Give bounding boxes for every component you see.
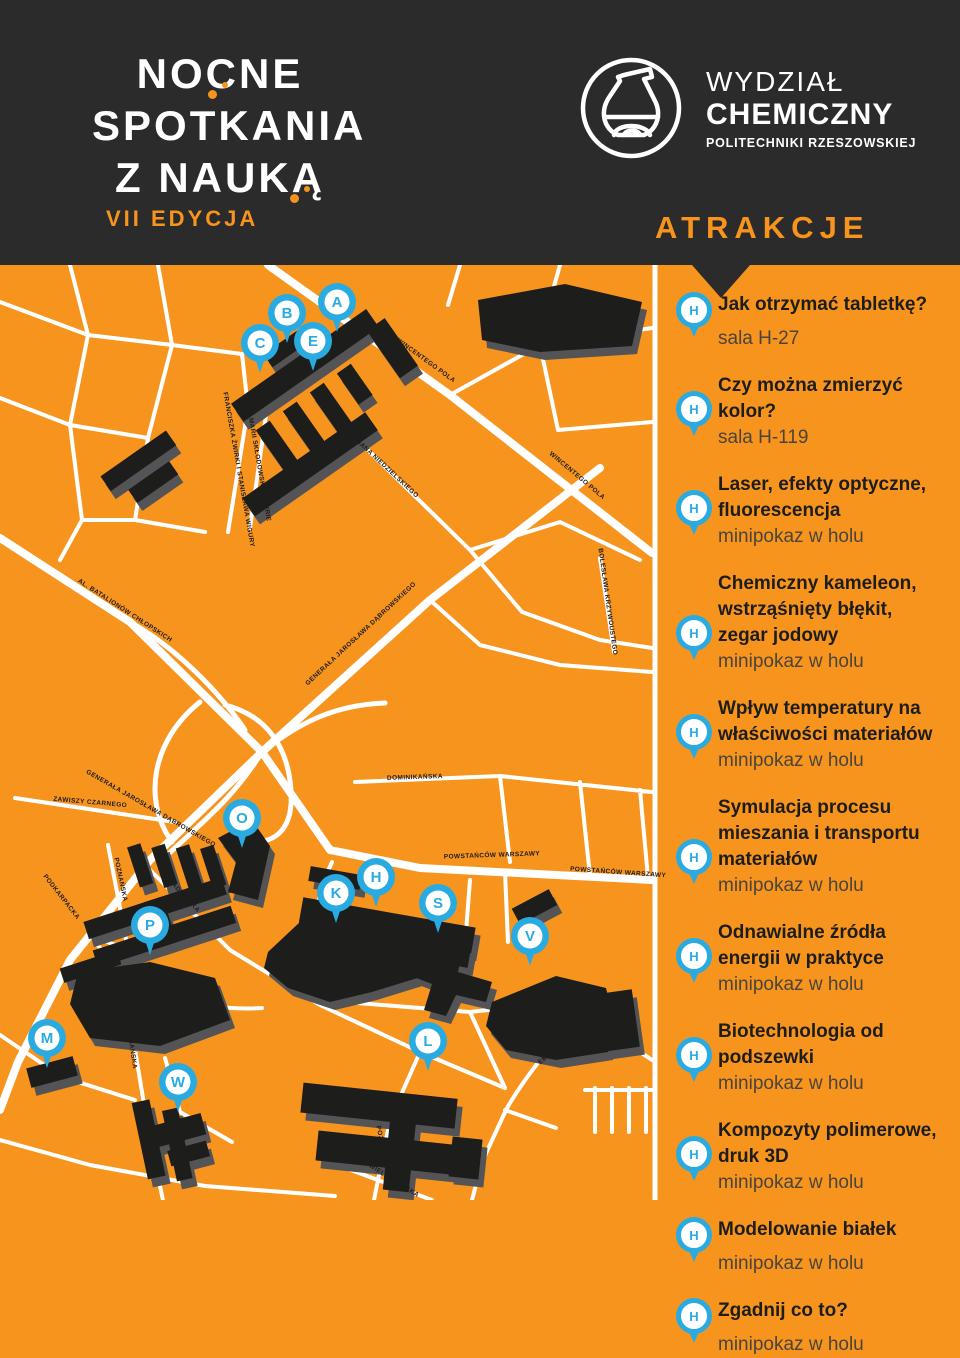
pin-cell: H bbox=[668, 938, 714, 974]
street-label: GENERAŁA JAROSŁAWA DĄBROWSKIEGO bbox=[304, 581, 417, 687]
event-logo: NOCNE SPOTKANIA Z NAUKĄ VII EDYCJA bbox=[92, 48, 348, 232]
attraction-location: minipokaz w holu bbox=[718, 972, 946, 998]
bubble-accent-icon bbox=[222, 82, 228, 88]
location-pin-icon: H bbox=[676, 1136, 712, 1172]
pin-cell: H bbox=[668, 391, 714, 427]
pointer-arrow-icon bbox=[692, 265, 750, 298]
attraction-title: Zgadnij co to? bbox=[718, 1298, 946, 1332]
attraction-title: Chemiczny kameleon, wstrząśnięty błękit,… bbox=[718, 571, 946, 649]
location-pin-icon: H bbox=[676, 490, 712, 526]
attraction-title: Wpływ temperatury na właściwości materia… bbox=[718, 696, 946, 748]
street-label: POWSTAŃCÓW WARSZAWY bbox=[444, 848, 541, 860]
attraction-location: minipokaz w holu bbox=[718, 1251, 946, 1277]
attraction-item: H Zgadnij co to? minipokaz w holu bbox=[668, 1298, 946, 1358]
attraction-location: sala H-27 bbox=[718, 326, 946, 352]
location-pin-icon: H bbox=[676, 714, 712, 750]
bubble-accent-icon bbox=[208, 90, 217, 99]
pin-letter: H bbox=[689, 1228, 698, 1243]
pin-cell: H bbox=[668, 839, 714, 875]
street-label: PODKARPACKA bbox=[41, 873, 81, 921]
pin-cell: H bbox=[668, 490, 714, 526]
map-pin-letter: W bbox=[171, 1074, 186, 1091]
street-label: AL. BATALIONÓW CHŁOPSKICH bbox=[76, 576, 174, 644]
event-edition: VII EDYCJA bbox=[106, 206, 348, 232]
attraction-location: minipokaz w holu bbox=[718, 873, 946, 899]
map-pin-letter: V bbox=[525, 928, 535, 945]
attraction-item: H Jak otrzymać tabletkę? sala H-27 bbox=[668, 292, 946, 352]
attraction-item: H Chemiczny kameleon, wstrząśnięty błęki… bbox=[668, 571, 946, 675]
faculty-logo: WYDZIAŁ CHEMICZNY POLITECHNIKI RZESZOWSK… bbox=[578, 55, 916, 161]
event-title-line3: Z NAUKĄ bbox=[92, 152, 348, 204]
attraction-item: H Czy można zmierzyć kolor? sala H-119 bbox=[668, 373, 946, 451]
pin-cell: H bbox=[668, 1217, 714, 1253]
flask-icon bbox=[578, 55, 684, 161]
attraction-title: Kompozyty polimerowe, druk 3D bbox=[718, 1118, 946, 1170]
location-pin-icon: H bbox=[676, 1037, 712, 1073]
location-pin-icon: H bbox=[676, 1217, 712, 1253]
map-pin-letter: P bbox=[145, 917, 155, 934]
attraction-title: Czy można zmierzyć kolor? bbox=[718, 373, 946, 425]
map-pin-letter: S bbox=[433, 895, 443, 912]
pin-letter: H bbox=[689, 626, 698, 641]
map-pin-W[interactable]: W bbox=[159, 1063, 197, 1112]
location-pin-icon: H bbox=[676, 1298, 712, 1334]
map-pin-letter: K bbox=[331, 885, 342, 902]
map-pin-letter: H bbox=[371, 869, 382, 886]
pin-letter: H bbox=[689, 1048, 698, 1063]
attraction-title: Jak otrzymać tabletkę? bbox=[718, 292, 946, 326]
event-title-line1: NOCNE bbox=[92, 48, 348, 100]
attraction-item: H Odnawialne źródła energii w praktyce m… bbox=[668, 920, 946, 998]
bubble-accent-icon bbox=[290, 194, 299, 203]
location-pin-icon: H bbox=[676, 839, 712, 875]
pin-cell: H bbox=[668, 1037, 714, 1073]
pin-cell: H bbox=[668, 1298, 714, 1334]
street-label: ROMANA NIEDZIELSKIEGO bbox=[346, 430, 420, 499]
map-pin-letter: A bbox=[332, 294, 343, 311]
pin-cell: H bbox=[668, 714, 714, 750]
attraction-location: minipokaz w holu bbox=[718, 1332, 946, 1358]
attraction-item: H Modelowanie białek minipokaz w holu bbox=[668, 1217, 946, 1277]
campus-map: WINCENTEGO POLAWINCENTEGO POLAROMANA NIE… bbox=[0, 265, 672, 1200]
attractions-heading: ATRAKCJE bbox=[655, 210, 870, 246]
attraction-location: sala H-119 bbox=[718, 425, 946, 451]
pin-letter: H bbox=[689, 303, 698, 318]
attraction-location: minipokaz w holu bbox=[718, 524, 946, 550]
attraction-item: H Biotechnologia od podszewki minipokaz … bbox=[668, 1019, 946, 1097]
map-pin-letter: O bbox=[236, 810, 248, 827]
attraction-title: Odnawialne źródła energii w praktyce bbox=[718, 920, 946, 972]
pin-letter: H bbox=[689, 725, 698, 740]
attraction-title: Biotechnologia od podszewki bbox=[718, 1019, 946, 1071]
faculty-line1: WYDZIAŁ bbox=[706, 66, 916, 98]
attraction-title: Symulacja procesu mieszania i transportu… bbox=[718, 795, 946, 873]
location-pin-icon: H bbox=[676, 391, 712, 427]
map-pin-V[interactable]: V bbox=[511, 917, 549, 966]
pin-letter: H bbox=[689, 402, 698, 417]
attraction-item: H Kompozyty polimerowe, druk 3D minipoka… bbox=[668, 1118, 946, 1196]
pin-letter: H bbox=[689, 501, 698, 516]
pin-cell: H bbox=[668, 615, 714, 651]
faculty-line3: POLITECHNIKI RZESZOWSKIEJ bbox=[706, 136, 916, 150]
location-pin-icon: H bbox=[676, 615, 712, 651]
faculty-line2: CHEMICZNY bbox=[706, 98, 916, 132]
attraction-item: H Laser, efekty optyczne, fluorescencja … bbox=[668, 472, 946, 550]
street-label: GENERAŁA JAROSŁAWA DĄBROWSKIEGO bbox=[85, 769, 217, 849]
location-pin-icon: H bbox=[676, 938, 712, 974]
pin-letter: H bbox=[689, 1309, 698, 1324]
attraction-title: Laser, efekty optyczne, fluorescencja bbox=[718, 472, 946, 524]
event-title-line2: SPOTKANIA bbox=[92, 100, 348, 152]
attraction-location: minipokaz w holu bbox=[718, 649, 946, 675]
map-pin-letter: M bbox=[41, 1030, 54, 1047]
map-pin-H[interactable]: H bbox=[357, 858, 395, 907]
attractions-list: H Jak otrzymać tabletkę? sala H-27 H Czy… bbox=[668, 292, 946, 1358]
map-pin-letter: B bbox=[282, 305, 293, 322]
attraction-item: H Wpływ temperatury na właściwości mater… bbox=[668, 696, 946, 774]
header: NOCNE SPOTKANIA Z NAUKĄ VII EDYCJA WYDZI… bbox=[0, 0, 960, 265]
map-pin-letter: L bbox=[423, 1033, 432, 1050]
pin-cell: H bbox=[668, 1136, 714, 1172]
attraction-location: minipokaz w holu bbox=[718, 1071, 946, 1097]
attraction-title: Modelowanie białek bbox=[718, 1217, 946, 1251]
attraction-location: minipokaz w holu bbox=[718, 1170, 946, 1196]
attraction-item: H Symulacja procesu mieszania i transpor… bbox=[668, 795, 946, 899]
pin-letter: H bbox=[689, 850, 698, 865]
pin-letter: H bbox=[689, 1147, 698, 1162]
attraction-location: minipokaz w holu bbox=[718, 748, 946, 774]
map-pin-letter: E bbox=[308, 333, 318, 350]
pin-letter: H bbox=[689, 949, 698, 964]
map-pin-letter: C bbox=[255, 335, 266, 352]
bubble-accent-icon bbox=[304, 186, 310, 192]
